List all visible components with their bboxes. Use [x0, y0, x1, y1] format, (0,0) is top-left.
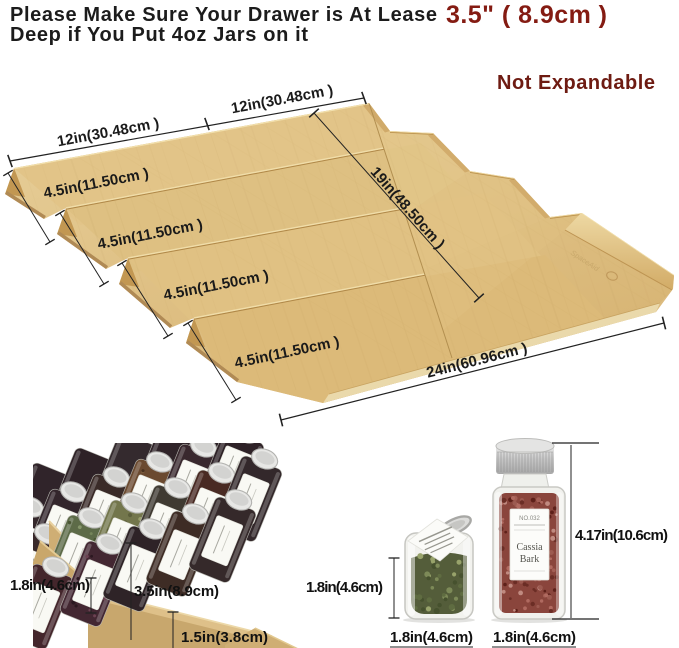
svg-text:Deep if You Put 4oz Jars on it: Deep if You Put 4oz Jars on it — [10, 24, 308, 46]
svg-text:NO.032: NO.032 — [519, 516, 540, 522]
svg-text:Please Make Sure Your Drawer i: Please Make Sure Your Drawer is At Lease — [10, 4, 437, 26]
svg-text:1.8in(4.6cm): 1.8in(4.6cm) — [306, 579, 383, 596]
svg-text:Cassia: Cassia — [516, 542, 543, 553]
svg-text:1.8in(4.6cm): 1.8in(4.6cm) — [390, 629, 473, 646]
svg-text:1.8in(4.6cm): 1.8in(4.6cm) — [493, 629, 576, 646]
svg-text:4.17in(10.6cm): 4.17in(10.6cm) — [575, 527, 668, 544]
svg-text:1.8in(4.6cm): 1.8in(4.6cm) — [10, 577, 90, 594]
svg-text:Bark: Bark — [520, 554, 539, 565]
svg-text:3.5in(8.9cm): 3.5in(8.9cm) — [134, 583, 219, 600]
svg-text:3.5" ( 8.9cm ): 3.5" ( 8.9cm ) — [446, 1, 607, 29]
svg-text:Not Expandable: Not Expandable — [497, 72, 655, 94]
svg-text:1.5in(3.8cm): 1.5in(3.8cm) — [181, 629, 268, 646]
